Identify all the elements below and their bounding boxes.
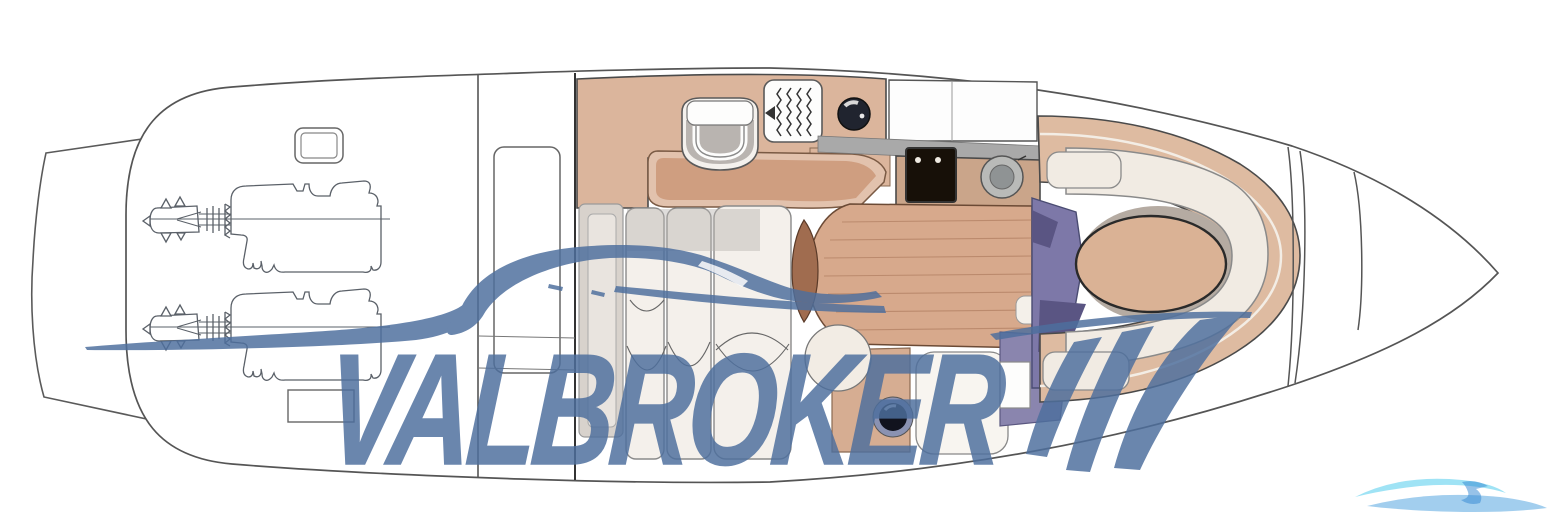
- svg-text:VALBROKER: VALBROKER: [321, 321, 1010, 498]
